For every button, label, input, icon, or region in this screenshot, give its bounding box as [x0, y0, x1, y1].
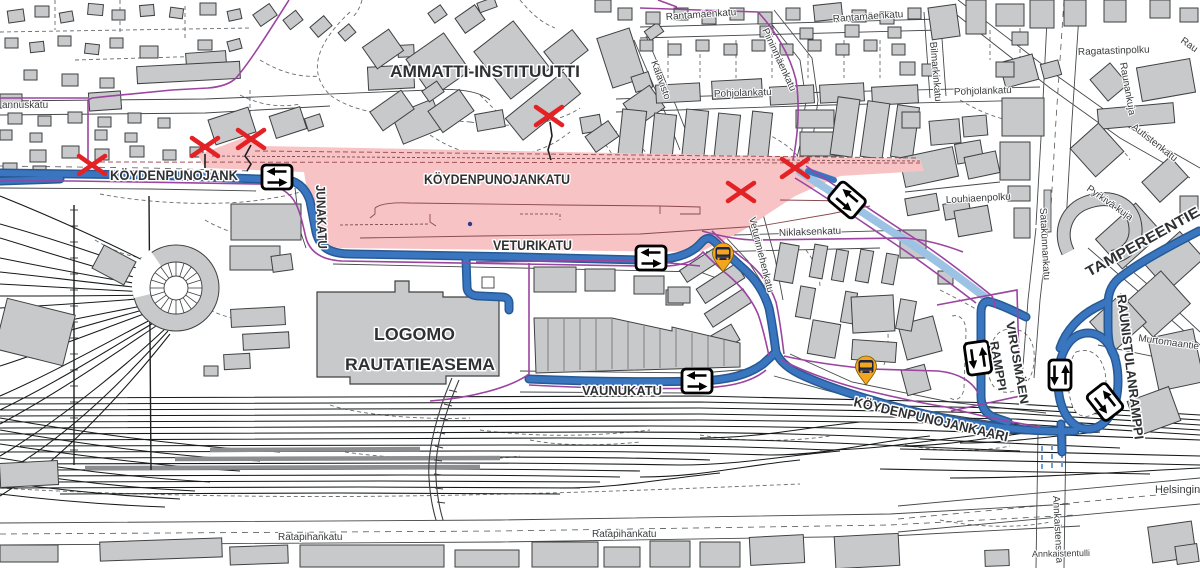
svg-text:Annkaistentulli: Annkaistentulli — [1032, 548, 1090, 559]
svg-text:VAUNUKATU: VAUNUKATU — [582, 384, 662, 398]
svg-text:Pohjolankatu: Pohjolankatu — [954, 85, 1012, 98]
svg-text:Niklaksenkatu: Niklaksenkatu — [779, 226, 842, 239]
svg-text:KÖYDENPUNOJANKATU: KÖYDENPUNOJANKATU — [424, 172, 570, 187]
svg-text:annuskatu: annuskatu — [2, 100, 48, 111]
svg-text:Ratapihankatu: Ratapihankatu — [592, 529, 657, 540]
svg-text:VETURIKATU: VETURIKATU — [493, 238, 572, 253]
svg-text:LOGOMO: LOGOMO — [374, 324, 455, 344]
svg-text:RAUTATIEASEMA: RAUTATIEASEMA — [345, 356, 495, 374]
svg-text:Helsingin: Helsingin — [1155, 484, 1200, 496]
svg-text:Ratapihankatu: Ratapihankatu — [278, 532, 343, 543]
svg-text:JUNAKATU: JUNAKATU — [313, 185, 330, 249]
svg-text:KÖYDENPUNOJANK: KÖYDENPUNOJANK — [110, 168, 238, 183]
svg-text:Pohjolankatu: Pohjolankatu — [714, 87, 772, 100]
svg-text:AMMATTI-INSTITUUTTI: AMMATTI-INSTITUUTTI — [390, 62, 580, 81]
